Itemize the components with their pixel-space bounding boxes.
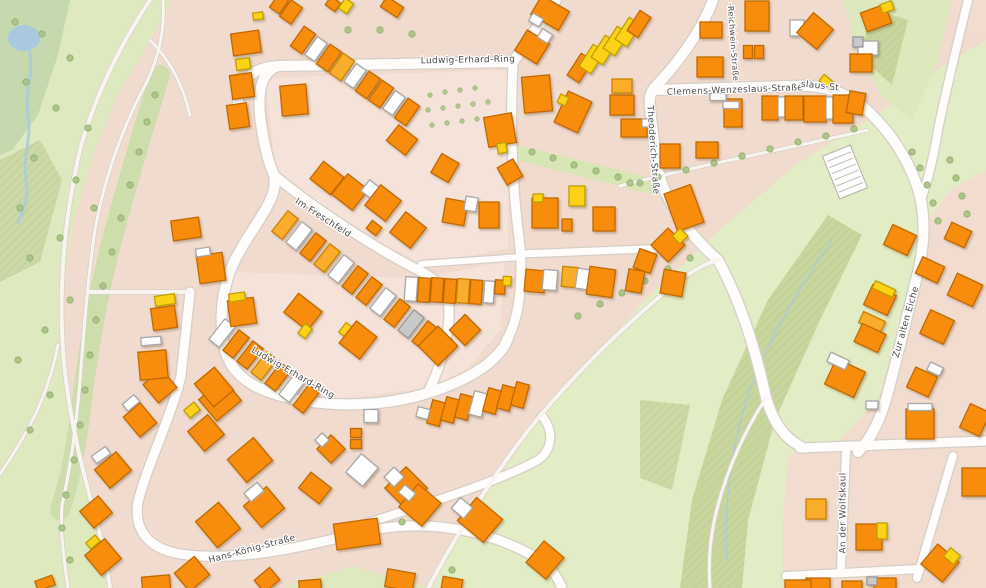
building	[229, 292, 246, 302]
building	[696, 142, 718, 158]
tree	[935, 218, 941, 224]
building	[333, 518, 380, 550]
building	[744, 46, 753, 59]
orchard-tree	[441, 106, 446, 111]
building	[404, 277, 418, 302]
building	[364, 410, 378, 423]
tree	[930, 200, 936, 206]
tree	[57, 235, 63, 241]
building	[229, 73, 254, 100]
building	[430, 278, 444, 303]
tree	[109, 249, 115, 255]
building	[700, 22, 722, 38]
orchard-tree	[426, 108, 431, 113]
map-canvas[interactable]: Ludwig-Erhard-RingLudwig-Erhard-RingIm F…	[0, 0, 986, 588]
orchard-tree	[445, 121, 450, 126]
building	[542, 269, 558, 290]
building	[464, 196, 478, 212]
building	[351, 429, 362, 438]
orchard-tree	[456, 104, 461, 109]
tree	[67, 557, 73, 563]
building	[562, 219, 572, 231]
tree	[739, 153, 745, 159]
tree	[71, 457, 77, 463]
tree	[118, 215, 124, 221]
tree	[31, 155, 37, 161]
orchard-tree	[471, 102, 476, 107]
tree	[947, 157, 953, 163]
tree	[615, 174, 621, 180]
orchard-tree	[428, 93, 433, 98]
building	[610, 95, 634, 115]
building	[853, 37, 863, 47]
tree	[409, 31, 415, 37]
tree	[851, 126, 857, 132]
tree	[575, 313, 581, 319]
building	[469, 280, 483, 305]
building	[533, 194, 543, 202]
building	[586, 266, 616, 297]
building	[280, 84, 309, 116]
tree	[77, 422, 83, 428]
tree	[27, 255, 33, 261]
building	[521, 75, 552, 113]
building	[503, 276, 512, 286]
tree	[571, 162, 577, 168]
tree	[59, 525, 65, 531]
tree	[53, 105, 59, 111]
tree	[711, 160, 717, 166]
building	[612, 79, 632, 93]
building	[846, 91, 866, 115]
orchard-tree	[443, 90, 448, 95]
building	[417, 278, 431, 303]
tree	[42, 327, 48, 333]
building	[479, 202, 499, 228]
building	[906, 409, 934, 439]
pond	[8, 25, 40, 51]
tree	[23, 79, 29, 85]
building	[141, 336, 162, 346]
building	[785, 96, 803, 120]
building	[762, 96, 778, 120]
tree	[67, 55, 73, 61]
building	[351, 440, 362, 449]
tree	[12, 19, 18, 25]
tree	[144, 119, 150, 125]
orchard-tree	[475, 117, 480, 122]
building	[866, 401, 878, 409]
tree	[47, 392, 53, 398]
tree	[637, 180, 643, 186]
tree	[136, 149, 142, 155]
tree	[550, 155, 556, 161]
building	[593, 207, 615, 231]
orchard-tree	[458, 88, 463, 93]
orchard-tree	[460, 119, 465, 124]
building	[299, 579, 322, 588]
building	[226, 103, 249, 130]
building	[755, 46, 764, 59]
tree	[597, 301, 603, 307]
building	[804, 96, 826, 122]
tree	[82, 387, 88, 393]
building	[877, 523, 887, 539]
building	[908, 404, 932, 411]
orchard-tree	[473, 86, 478, 91]
tree	[377, 27, 383, 33]
building	[697, 57, 723, 77]
tree	[619, 290, 625, 296]
building	[442, 198, 468, 225]
building	[171, 217, 202, 241]
street-label: Ludwig-Erhard-Ring	[421, 55, 516, 67]
building	[196, 247, 211, 257]
map-viewport[interactable]: Ludwig-Erhard-RingLudwig-Erhard-RingIm F…	[0, 0, 986, 588]
tree	[15, 357, 21, 363]
tree	[87, 352, 93, 358]
building	[569, 186, 585, 206]
tree	[100, 283, 106, 289]
tree	[627, 180, 633, 186]
building	[151, 305, 178, 330]
building	[962, 468, 986, 496]
building	[484, 113, 517, 147]
building	[867, 577, 877, 585]
building	[483, 281, 495, 304]
orchard-tree	[430, 123, 435, 128]
tree	[85, 125, 91, 131]
tree	[959, 193, 965, 199]
tree	[73, 177, 79, 183]
building	[235, 58, 250, 71]
building	[443, 279, 457, 304]
tree	[924, 182, 930, 188]
building	[231, 30, 262, 56]
building	[850, 54, 872, 72]
tree	[127, 182, 133, 188]
tree	[767, 146, 773, 152]
tree	[17, 205, 23, 211]
tree	[964, 211, 970, 217]
building	[154, 294, 175, 307]
tree	[917, 165, 923, 171]
tree	[93, 317, 99, 323]
building	[842, 581, 862, 588]
building	[660, 144, 680, 168]
building	[253, 12, 264, 20]
building	[806, 499, 826, 519]
tree	[683, 167, 689, 173]
tree	[152, 92, 158, 98]
tree	[953, 175, 959, 181]
street-label: An der Wolfskaul	[839, 472, 849, 553]
building	[745, 1, 769, 31]
tree	[795, 139, 801, 145]
building	[456, 279, 470, 304]
building	[723, 102, 739, 109]
building	[416, 407, 430, 420]
building	[660, 269, 686, 296]
building	[497, 142, 508, 153]
building	[785, 580, 811, 588]
tree	[399, 519, 405, 525]
tree	[909, 149, 915, 155]
tree	[823, 133, 829, 139]
orchard-tree	[486, 100, 491, 105]
building	[141, 575, 170, 588]
tree	[63, 492, 69, 498]
tree	[67, 297, 73, 303]
tree	[27, 427, 33, 433]
tree	[687, 255, 693, 261]
tree	[345, 27, 351, 33]
tree	[593, 168, 599, 174]
tree	[91, 205, 97, 211]
tree	[449, 567, 455, 573]
building	[625, 269, 645, 293]
tree	[529, 149, 535, 155]
tree	[39, 31, 45, 37]
building	[138, 350, 168, 380]
